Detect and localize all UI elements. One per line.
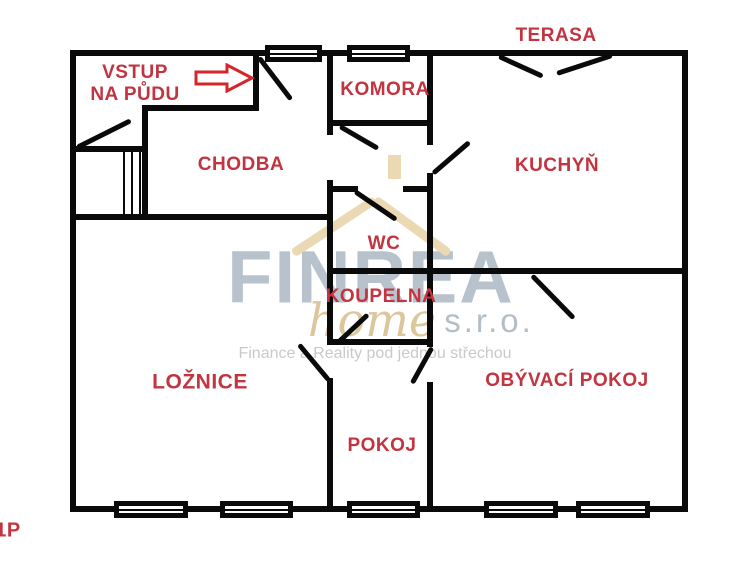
window-pane-line [119, 509, 183, 511]
wall [70, 50, 76, 512]
window-pane-line [225, 509, 288, 511]
wall [327, 186, 358, 192]
watermark-suffix-text: s.r.o. [444, 302, 534, 340]
room-label-kuchyn: KUCHYŇ [515, 155, 599, 177]
door-swing [257, 55, 293, 100]
attic-stairs-tread [139, 152, 141, 216]
watermark-tagline: Finance a Reality pod jednou střechou [238, 345, 511, 363]
attic-stairs-tread [131, 152, 133, 216]
watermark-roof-chimney [388, 155, 401, 179]
wall [327, 378, 333, 511]
floor-plan: FINREA home s.r.o. Finance a Reality pod… [0, 0, 749, 562]
room-label-pokoj: POKOJ [347, 435, 416, 457]
room-label-terasa: TERASA [515, 25, 596, 47]
wall [327, 180, 333, 345]
wall [142, 105, 148, 220]
window-pane-line [270, 53, 317, 55]
wall [427, 173, 433, 347]
room-label-loznice: LOŽNICE [152, 371, 248, 396]
window-pane-line [489, 509, 553, 511]
attic-direction-arrow-icon [193, 63, 255, 93]
room-label-koupelna: KOUPELNA [326, 286, 437, 308]
wall [327, 268, 688, 274]
attic-stairs-tread [123, 152, 125, 216]
door-swing [339, 124, 380, 150]
door-swing [76, 118, 132, 149]
wall [682, 50, 688, 512]
door-swing [556, 53, 613, 76]
door-swing [431, 140, 470, 175]
window-pane-line [352, 53, 405, 55]
wall [70, 214, 333, 220]
window-symbol [265, 45, 322, 62]
window-pane-line [352, 509, 415, 511]
window-symbol [484, 501, 558, 518]
room-label-wc: WC [368, 233, 401, 255]
window-pane-line [581, 509, 645, 511]
wall [427, 382, 433, 512]
room-label-komora: KOMORA [340, 79, 430, 101]
room-label-chodba: CHODBA [198, 154, 284, 176]
room-label-vstup-na-pudu: VSTUP NA PŮDU [90, 62, 179, 106]
room-label-obyvaci-pokoj: OBÝVACÍ POKOJ [485, 370, 648, 392]
door-swing [498, 54, 544, 79]
room-label-floor-tag: 1P [0, 519, 21, 542]
window-symbol [576, 501, 650, 518]
window-symbol [347, 501, 420, 518]
door-swing [530, 273, 576, 319]
window-symbol [347, 45, 410, 62]
window-symbol [220, 501, 293, 518]
window-symbol [114, 501, 188, 518]
